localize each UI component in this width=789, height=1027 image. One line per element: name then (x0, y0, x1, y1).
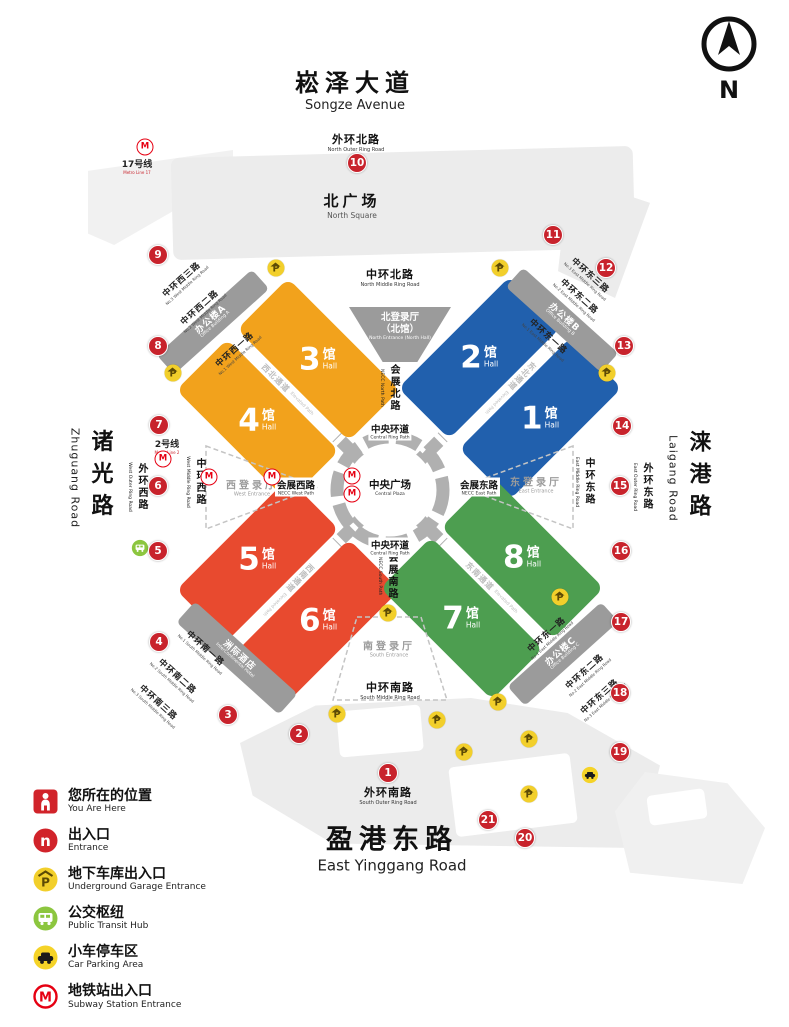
garage-entrance-icon: P (492, 260, 509, 277)
entrance-marker-19: 19 (610, 742, 630, 762)
subway-station-icon: M (344, 468, 361, 485)
middle-east-road-label: East Middle Ring Road中环东路 (574, 457, 596, 507)
entrance-marker-7: 7 (149, 415, 169, 435)
necc-east-path-label: 会展东路NECC East Path (458, 478, 500, 497)
svg-text:n: n (40, 832, 51, 850)
car-icon (33, 945, 58, 970)
songze-avenue-label: 崧泽大道Songze Avenue (295, 63, 415, 113)
legend-subway-entrance: M 地铁站出入口 Subway Station Entrance (33, 983, 206, 1009)
bus-icon (33, 906, 58, 931)
southeast-area (615, 772, 765, 884)
hall-1-number: 1 (521, 403, 543, 434)
entrance-marker-11: 11 (543, 225, 563, 245)
garage-entrance-icon: P (429, 712, 446, 729)
yinggang-road-label: 盈港东路East Yinggang Road (317, 818, 466, 875)
garage-entrance-icon: P (165, 365, 182, 382)
necc-north-path-label: NECC North Path会展北路 (379, 364, 401, 412)
legend-transit-hub: 公交枢纽 Public Transit Hub (33, 905, 206, 931)
entrance-marker-9: 9 (148, 245, 168, 265)
entrance-marker-8: 8 (148, 336, 168, 356)
entrance-marker-13: 13 (614, 336, 634, 356)
car-parking-area-icon (582, 767, 599, 788)
entrance-marker-17: 17 (611, 612, 631, 632)
middle-south-road-label: 中环南路South Middle Ring Road (360, 679, 420, 701)
necc-west-path-label: 会展西路NECC West Path (275, 478, 317, 497)
subway-station-icon: M (137, 139, 154, 156)
public-transit-hub-icon (132, 540, 149, 561)
svg-text:M: M (39, 991, 52, 1006)
entrance-marker-6: 6 (148, 476, 168, 496)
subway-station-icon: M (344, 486, 361, 503)
laigang-road-label: Laigang Road涞港路 (667, 430, 714, 526)
legend-car-parking: 小车停车区 Car Parking Area (33, 944, 206, 970)
south-parking-structure (448, 753, 578, 837)
entrance-icon: n (33, 828, 58, 853)
outer-east-road-label: East Outer Ring Road外环东路 (632, 463, 654, 511)
central-ring-path-label-south: 中央环道Central Ring Path (368, 538, 411, 557)
garage-entrance-icon: P (521, 731, 538, 748)
entrance-marker-20: 20 (515, 828, 535, 848)
hall-5-number: 5 (239, 544, 261, 575)
entrance-marker-3: 3 (218, 705, 238, 725)
metro-line17-label: 17号线Metro Line 17 (122, 157, 153, 175)
east-entrance-label: 东登录厅East Entrance (510, 474, 562, 495)
garage-entrance-icon: P (329, 706, 346, 723)
central-plaza-label: 中央广场Central Plaza (369, 477, 411, 497)
necc-venue-map: { "compass": {"letter": "N"}, "roads": {… (0, 0, 789, 1027)
subway-station-icon: M (201, 469, 218, 486)
hall-6-number: 6 (299, 605, 321, 636)
entrance-marker-21: 21 (478, 810, 498, 830)
hall-2-number: 2 (461, 342, 483, 373)
garage-entrance-icon: P (268, 260, 285, 277)
compass: N (693, 14, 765, 102)
outer-north-road-label: 外环北路North Outer Ring Road (328, 131, 385, 153)
outer-west-road-label: West Outer Ring Road外环西路 (127, 462, 149, 512)
garage-entrance-icon: P (490, 694, 507, 711)
south-entrance-label: 南登录厅South Entrance (363, 638, 415, 659)
garage-entrance-icon: P (521, 786, 538, 803)
entrance-marker-10: 10 (347, 153, 367, 173)
subway-station-icon: M (155, 451, 172, 468)
underground-garage-icon: P (33, 867, 58, 892)
garage-entrance-icon: P (552, 589, 569, 606)
central-ring-path-label-north: 中央环道Central Ring Path (368, 422, 411, 441)
entrance-marker-15: 15 (610, 476, 630, 496)
entrance-marker-5: 5 (148, 541, 168, 561)
legend-entrance: n 出入口 Entrance (33, 827, 206, 853)
map-legend: 您所在的位置 You Are Here n 出入口 Entrance P 地下车… (33, 788, 206, 1023)
hall-3-number: 3 (299, 344, 321, 375)
garage-entrance-icon: P (456, 744, 473, 761)
subway-logo-icon: M (33, 984, 58, 1009)
hall-4-number: 4 (239, 405, 261, 436)
legend-you-are-here: 您所在的位置 You Are Here (33, 788, 206, 814)
entrance-marker-1: 1 (378, 763, 398, 783)
you-are-here-icon (33, 789, 58, 814)
compass-letter: N (693, 78, 765, 102)
entrance-marker-18: 18 (610, 683, 630, 703)
hall-7-number: 7 (443, 603, 465, 634)
compass-north-icon (699, 14, 759, 74)
hall-8-number: 8 (503, 542, 525, 573)
middle-north-road-label: 中环北路North Middle Ring Road (360, 266, 419, 288)
svg-text:P: P (41, 875, 50, 889)
entrance-marker-14: 14 (612, 416, 632, 436)
necc-south-path-label: NECC South Path会展南路 (377, 552, 399, 600)
entrance-marker-4: 4 (149, 632, 169, 652)
entrance-marker-2: 2 (289, 724, 309, 744)
subway-station-icon: M (264, 469, 281, 486)
north-square-label: 北广场North Square (323, 190, 380, 220)
south-parking-structure (336, 704, 424, 757)
entrance-marker-16: 16 (611, 541, 631, 561)
garage-entrance-icon: P (599, 365, 616, 382)
legend-garage-entrance: P 地下车库出入口 Underground Garage Entrance (33, 866, 206, 892)
entrance-marker-12: 12 (596, 258, 616, 278)
outer-south-road-label: 外环南路South Outer Ring Road (359, 784, 416, 806)
garage-entrance-icon: P (380, 605, 397, 622)
zhuguang-road-label: Zhuguang Road诸光路 (69, 428, 116, 528)
